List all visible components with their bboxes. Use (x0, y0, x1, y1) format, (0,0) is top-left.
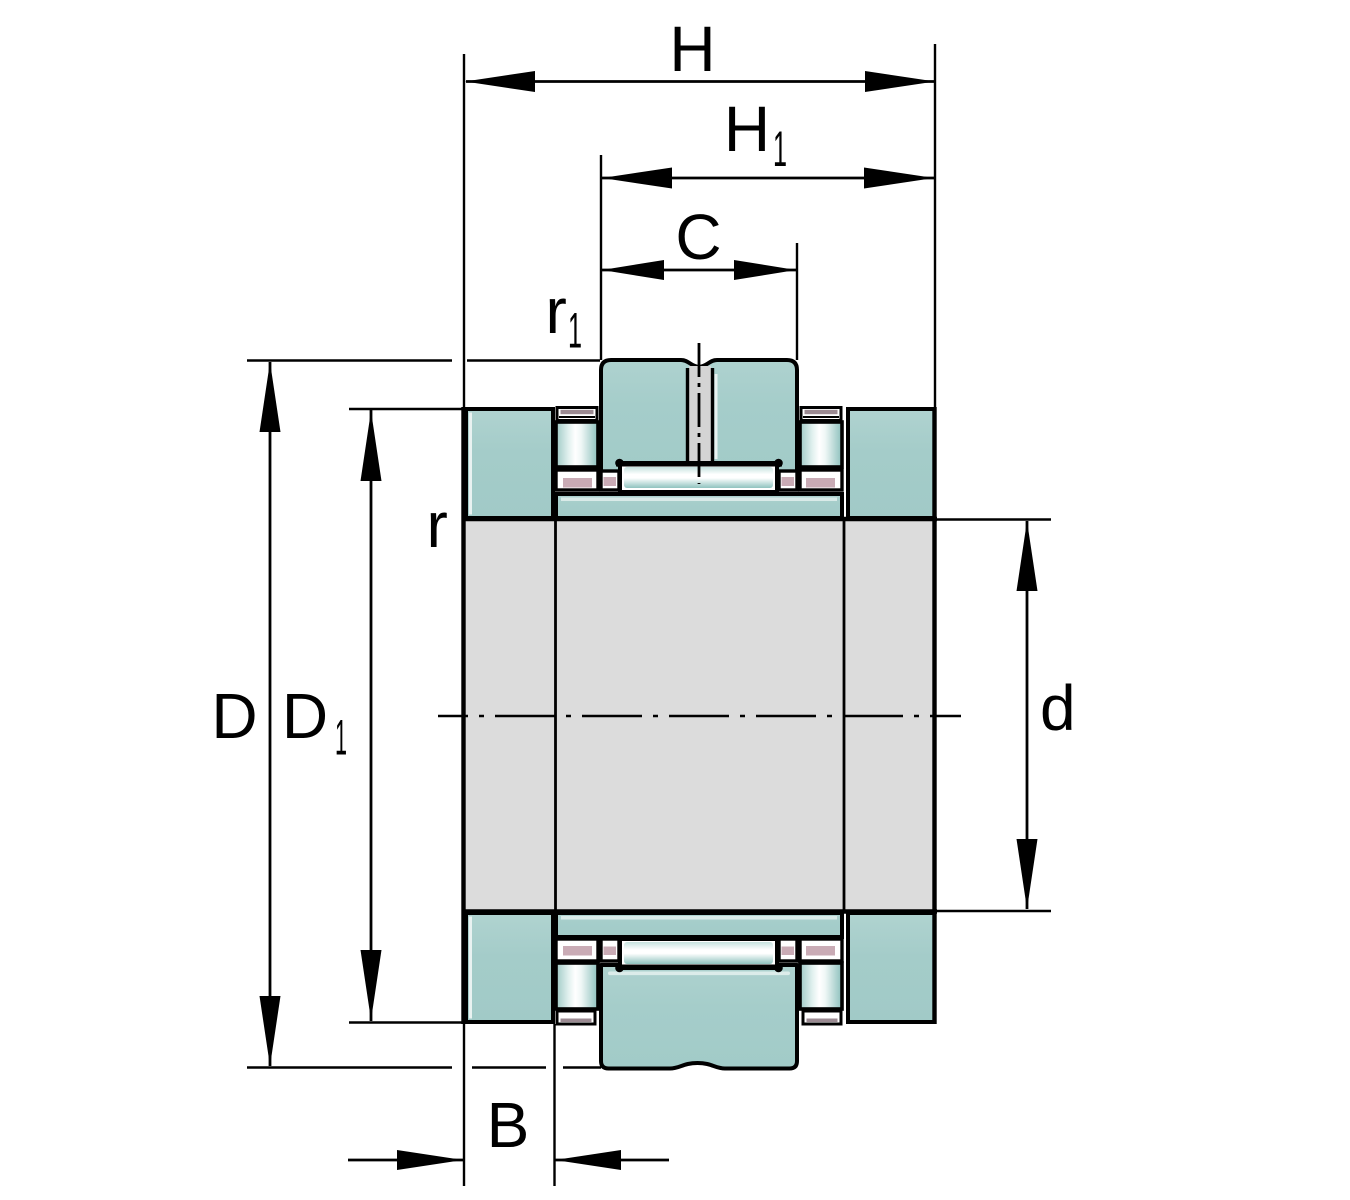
svg-text:d: d (1040, 672, 1076, 744)
svg-text:1: 1 (568, 303, 582, 359)
svg-text:1: 1 (773, 121, 787, 177)
svg-text:C: C (675, 201, 721, 273)
svg-text:B: B (487, 1089, 530, 1161)
svg-text:D: D (211, 680, 257, 752)
svg-text:1: 1 (335, 710, 347, 766)
svg-text:r: r (427, 489, 448, 561)
svg-text:D: D (282, 680, 328, 752)
svg-text:H: H (669, 13, 715, 85)
svg-text:H: H (724, 93, 770, 165)
svg-text:r: r (546, 275, 567, 347)
